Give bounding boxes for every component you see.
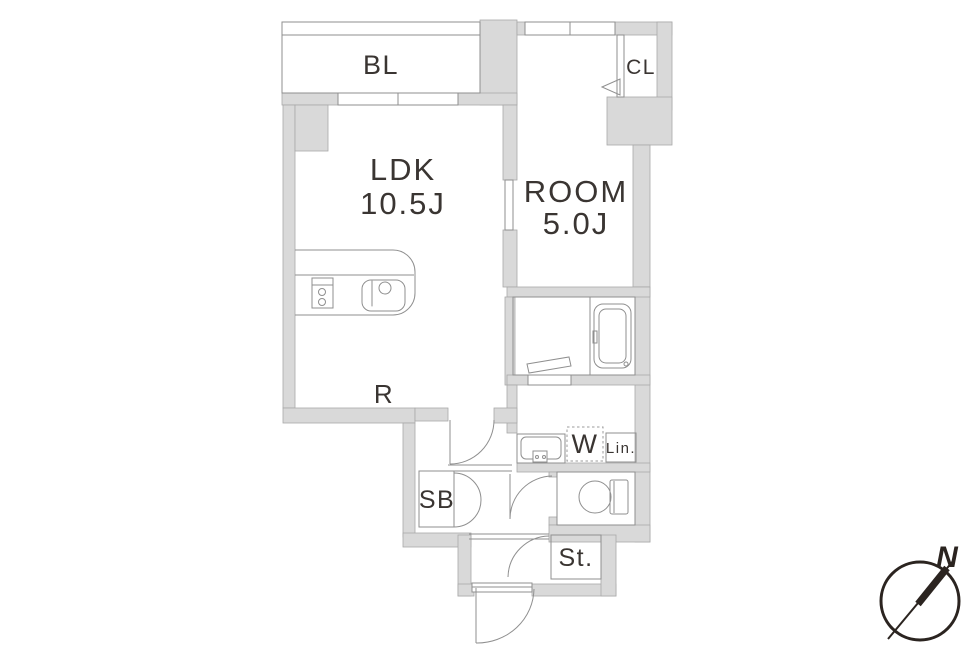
shoe-box-door-arc: [454, 473, 481, 500]
wall-segment: [458, 93, 517, 105]
shoe-box-label: SB: [419, 486, 455, 514]
closet-label: CL: [626, 56, 656, 79]
front-door-arc: [476, 589, 534, 643]
wall-segment: [507, 375, 528, 385]
stove-burner-icon: [319, 299, 326, 306]
floor-plan-drawing: BL CL LDK 10.5J ROOM 5.0J R W Lin. SB St…: [0, 0, 980, 655]
shoe-box-door-arc: [454, 500, 481, 527]
linen-label: Lin.: [606, 440, 636, 457]
wall-segment: [633, 145, 650, 287]
bathroom-folding-door: [527, 357, 571, 373]
wall-segment: [415, 408, 448, 421]
compass-north-label: N: [936, 541, 959, 574]
wall-segment: [517, 463, 650, 472]
refrigerator-label: R: [374, 379, 394, 409]
bathroom: [513, 297, 635, 385]
ldk-room-slider: [505, 180, 513, 230]
wall-segment: [601, 535, 616, 596]
wall-segment: [295, 105, 328, 151]
wall-segment: [503, 230, 517, 287]
wall-segment: [607, 97, 672, 145]
toilet-door-arc: [510, 476, 552, 519]
wall-segment: [480, 20, 517, 105]
ldk-size-label: 10.5J: [360, 186, 446, 221]
kitchen: [295, 250, 415, 315]
wall-segment: [571, 375, 650, 385]
wall-segment: [507, 287, 650, 297]
toilet-bowl: [579, 481, 611, 513]
room-label: ROOM: [524, 174, 628, 209]
wall-segment: [283, 105, 295, 408]
bathroom-door-track: [528, 375, 571, 385]
ldk-door-arc: [450, 420, 494, 464]
wall-segment: [635, 287, 650, 542]
storage-label: St.: [558, 544, 593, 572]
balcony-label: BL: [363, 50, 399, 80]
toilet-room: [557, 472, 635, 525]
wall-segment: [517, 22, 525, 35]
wall-segment: [283, 408, 415, 423]
toilet-tank: [610, 480, 628, 514]
room-size-label: 5.0J: [543, 206, 610, 241]
compass: N: [881, 541, 959, 640]
sink: [362, 280, 405, 311]
wall-segment: [549, 517, 557, 525]
stove: [312, 278, 333, 308]
floor-plan: BL CL LDK 10.5J ROOM 5.0J R W Lin. SB St…: [0, 0, 980, 655]
bathtub-drain-icon: [624, 362, 628, 366]
stove-burner-icon: [319, 289, 326, 296]
kitchen-counter: [295, 250, 415, 315]
wall-segment: [549, 525, 650, 542]
sink-faucet-icon: [379, 282, 391, 294]
storage-door-arc: [508, 536, 549, 577]
wall-segment: [503, 105, 517, 180]
closet: [602, 35, 624, 97]
washing-machine-label: W: [572, 429, 599, 459]
wall-segment: [494, 408, 517, 423]
bathtub-inner: [599, 309, 626, 363]
ldk-label: LDK: [370, 152, 436, 187]
wall-segment: [282, 93, 340, 105]
wall-segment: [403, 423, 415, 537]
